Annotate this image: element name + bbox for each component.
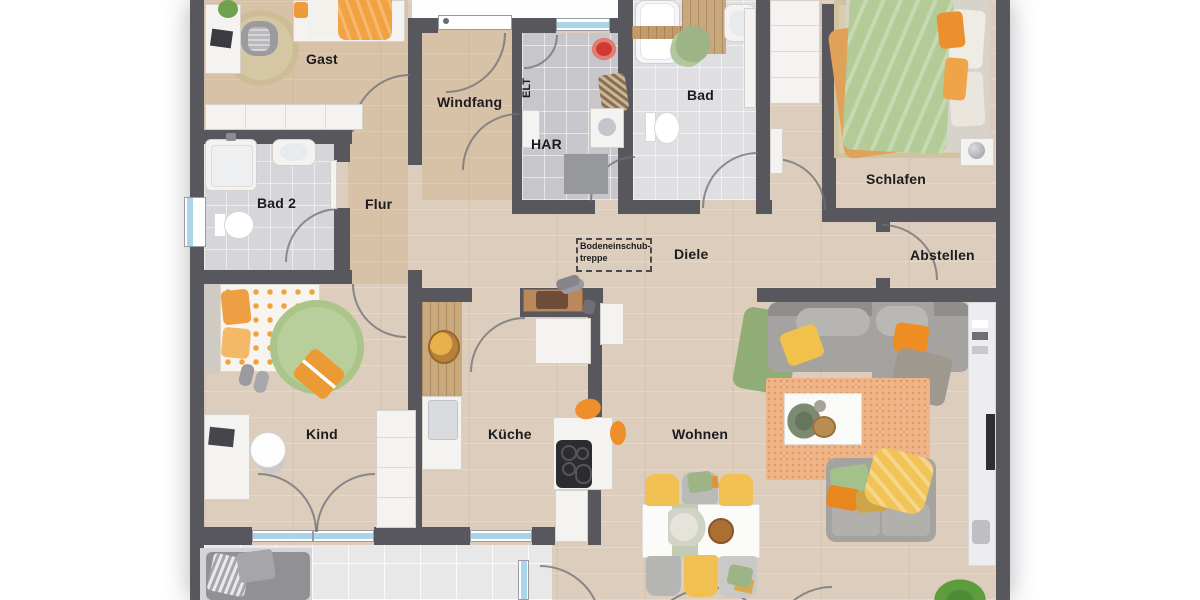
wohnen-deco-basket [972, 520, 990, 544]
gast-laptop [210, 29, 233, 49]
attic-hatch-label: Bodeneinschub- treppe [580, 241, 651, 264]
room-label-schlafen: Schlafen [866, 171, 926, 187]
gast-bed-duvet-white [308, 0, 342, 38]
room-label-bad: Bad [687, 87, 714, 103]
attic-hatch-label-line1: Bodeneinschub- [580, 241, 651, 251]
bad2-shower-head [226, 133, 236, 141]
room-label-abstellen: Abstellen [910, 247, 975, 263]
wohnen-tray [812, 416, 836, 438]
gast-chair-cushion [248, 27, 270, 51]
kueche-burner-2 [576, 447, 589, 460]
kueche-cabinet-bottom [555, 490, 588, 542]
window-entrance [556, 18, 610, 31]
room-label-wohnen: Wohnen [672, 426, 728, 442]
gast-plant [218, 0, 238, 18]
bad-cabinet-strip [744, 8, 756, 108]
wohnen-deco-books [972, 320, 988, 328]
dining-chair-top-3 [719, 474, 753, 506]
front-door [438, 15, 512, 30]
room-label-gast: Gast [306, 51, 338, 67]
wall-top-b [512, 18, 556, 33]
har-washer-door [598, 118, 616, 136]
kueche-cabinet-mid [535, 318, 591, 364]
wall-bad-right [756, 0, 770, 200]
wall-gast-windfang [408, 18, 422, 165]
window-left [184, 197, 206, 247]
floor-plan: Bodeneinschub- treppe [0, 0, 1200, 600]
room-label-kind: Kind [306, 426, 338, 442]
room-label-kueche: Küche [488, 426, 532, 442]
wohnen-vase [814, 400, 826, 412]
schlafen-lamp [968, 142, 985, 159]
kind-pillow-2 [221, 327, 252, 359]
bad-toilet-bowl [654, 112, 680, 144]
front-door-handle [443, 18, 449, 24]
wall-kind-top [190, 270, 352, 284]
har-storage-cube [564, 154, 608, 194]
schlafen-pillow-orange-1 [936, 11, 966, 50]
dining-chair-bottom-2 [684, 555, 718, 597]
kind-pillow-1 [220, 289, 251, 326]
bad2-sink-basin [280, 143, 308, 161]
terrace-door-wohnen-leaf [518, 560, 529, 600]
wall-bad2-flur-a [334, 130, 350, 162]
wall-diele-top-b [633, 200, 700, 214]
dining-bowl [708, 518, 734, 544]
wall-bottom-b [374, 527, 470, 545]
room-label-bad2: Bad 2 [257, 195, 296, 211]
terrace-door-kueche [470, 530, 532, 542]
kueche-burner-3 [562, 462, 576, 476]
wall-bottom-c [532, 527, 555, 545]
har-red-bowl [592, 38, 616, 60]
wall-diele-top-c [756, 200, 772, 214]
kind-laptop [208, 427, 235, 448]
room-label-diele: Diele [674, 246, 708, 262]
dining-chair-top-2-cloth [687, 470, 714, 493]
wall-diele-top-a [512, 200, 595, 214]
dining-chair-bottom-1 [646, 556, 681, 596]
kind-bed-headboard [204, 284, 220, 374]
kueche-burner-4 [575, 464, 592, 484]
schlafen-nook-shelf [770, 128, 783, 174]
wall-schlafen-bottom [822, 208, 996, 222]
wall-kueche-top [422, 288, 472, 302]
terrace-pillow-gray [236, 549, 276, 584]
schlafen-nook-wardrobe [770, 0, 820, 104]
bad2-toilet-bowl [224, 211, 254, 239]
wohnen-plant-bottom [930, 576, 990, 600]
wall-kueche-stub [588, 489, 601, 545]
bad2-shower-tray [211, 145, 253, 187]
wall-wohnen-top [757, 288, 996, 302]
diele-bench-cushion [536, 291, 568, 309]
dining-chair-top-1 [645, 474, 679, 506]
room-label-elt: ELT [521, 58, 533, 98]
kueche-barstool-2 [610, 421, 626, 445]
kueche-sink [428, 400, 458, 440]
kueche-burner-1 [561, 445, 577, 461]
room-label-flur: Flur [365, 196, 392, 212]
wall-right [996, 0, 1010, 600]
room-label-windfang: Windfang [437, 94, 502, 110]
kind-chair [250, 432, 286, 468]
kueche-fruit-bowl [428, 330, 460, 364]
wall-bottom-a [204, 527, 252, 545]
bad2-door-leaf [330, 160, 337, 209]
dining-bouquet [668, 508, 708, 546]
gast-wardrobe [205, 104, 363, 130]
kind-wardrobe [376, 410, 416, 528]
attic-hatch-label-line2: treppe [580, 253, 608, 263]
gast-bed-duvet-orange [338, 0, 392, 40]
kueche-sideboard [600, 303, 624, 345]
wohnen-tv [986, 414, 995, 470]
schlafen-pillow-orange-2 [942, 57, 969, 101]
gast-bed-pillow [294, 2, 308, 18]
bad-tub-caddy [632, 26, 683, 39]
room-label-har: HAR [531, 136, 562, 152]
wall-left [190, 0, 204, 600]
